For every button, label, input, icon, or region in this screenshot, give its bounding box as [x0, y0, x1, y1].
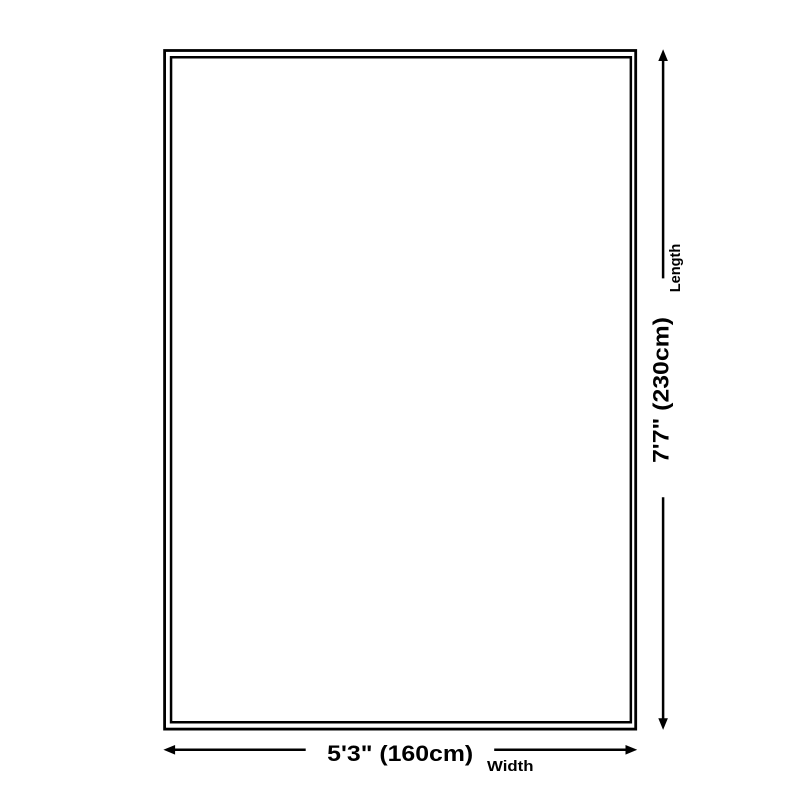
svg-text:Width: Width	[487, 759, 534, 775]
svg-text:5'3" (160cm): 5'3" (160cm)	[327, 741, 473, 766]
svg-text:Length: Length	[668, 244, 684, 293]
svg-text:7'7" (230cm): 7'7" (230cm)	[649, 317, 674, 463]
